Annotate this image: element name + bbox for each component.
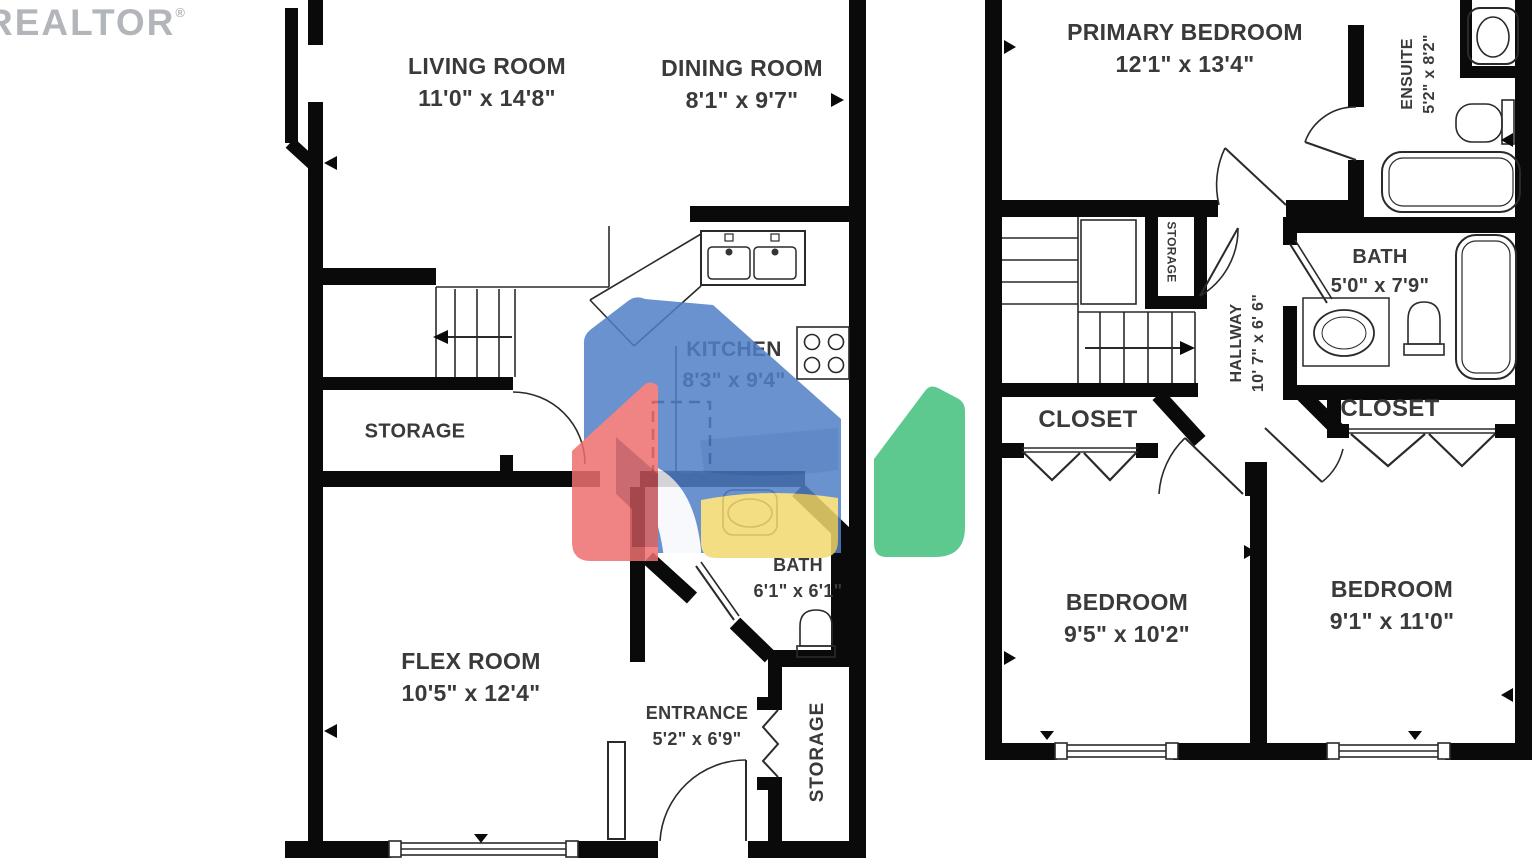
ensuite-toilet-icon bbox=[1456, 100, 1514, 144]
room-name: BATH bbox=[754, 552, 843, 578]
room-name: BATH bbox=[1331, 243, 1430, 272]
room-dims: 12'1" x 13'4" bbox=[1067, 48, 1303, 80]
stove-icon bbox=[797, 327, 849, 379]
room-label-bedroom-right: BEDROOM 9'1" x 11'0" bbox=[1330, 573, 1455, 637]
room-name: KITCHEN bbox=[682, 334, 785, 365]
room-label-closet-left: CLOSET bbox=[1038, 406, 1137, 434]
room-dims: 5'0" x 7'9" bbox=[1331, 272, 1430, 301]
room-label-hallway: HALLWAY 10' 7" x 6' 6" bbox=[1226, 294, 1270, 392]
ensuite-bathtub-icon bbox=[1382, 152, 1520, 212]
room-name: STORAGE bbox=[807, 702, 829, 803]
bath2-sink-icon bbox=[1303, 298, 1389, 366]
room-label-ensuite: ENSUITE 5'2" x 8'2" bbox=[1397, 34, 1441, 113]
room-name: BEDROOM bbox=[1064, 586, 1190, 618]
room-name: STORAGE bbox=[1164, 221, 1179, 282]
floor2-diagonal-walls bbox=[1158, 395, 1340, 441]
room-dims: 10' 7" x 6' 6" bbox=[1248, 294, 1270, 392]
room-label-bedroom-left: BEDROOM 9'5" x 10'2" bbox=[1064, 586, 1190, 650]
room-dims: 10'5" x 12'4" bbox=[401, 677, 540, 709]
ensuite-sink-icon bbox=[1468, 8, 1518, 64]
room-dims: 5'2" x 8'2" bbox=[1419, 34, 1441, 113]
room-name: HALLWAY bbox=[1226, 294, 1248, 392]
dishwasher-dashed-icon bbox=[653, 402, 710, 472]
room-label-bath1: BATH 6'1" x 6'1" bbox=[754, 552, 843, 604]
room-label-storage-mid: STORAGE bbox=[365, 421, 466, 444]
bath1-sink-icon bbox=[723, 490, 777, 535]
room-dims: 11'0" x 14'8" bbox=[408, 82, 566, 114]
room-dims: 6'1" x 6'1" bbox=[754, 578, 843, 604]
room-name: PRIMARY BEDROOM bbox=[1067, 16, 1303, 48]
room-name: DINING ROOM bbox=[661, 52, 823, 84]
room-label-closet-right: CLOSET bbox=[1340, 395, 1439, 423]
room-name: CLOSET bbox=[1038, 406, 1137, 434]
room-label-living-room: LIVING ROOM 11'0" x 14'8" bbox=[408, 50, 566, 114]
room-dims: 8'1" x 9'7" bbox=[661, 84, 823, 116]
room-label-dining-room: DINING ROOM 8'1" x 9'7" bbox=[661, 52, 823, 116]
room-name: CLOSET bbox=[1340, 395, 1439, 423]
room-dims: 9'1" x 11'0" bbox=[1330, 605, 1455, 637]
room-label-primary-bedroom: PRIMARY BEDROOM 12'1" x 13'4" bbox=[1067, 16, 1303, 80]
room-label-flex-room: FLEX ROOM 10'5" x 12'4" bbox=[401, 645, 540, 709]
room-dims: 5'2" x 6'9" bbox=[646, 726, 748, 752]
floorplan-linework bbox=[0, 0, 1536, 864]
room-name: ENTRANCE bbox=[646, 700, 748, 726]
room-label-bath2: BATH 5'0" x 7'9" bbox=[1331, 243, 1430, 301]
room-name: FLEX ROOM bbox=[401, 645, 540, 677]
room-label-kitchen: KITCHEN 8'3" x 9'4" bbox=[682, 334, 785, 396]
room-label-storage-entry: STORAGE bbox=[807, 702, 829, 803]
room-name: BEDROOM bbox=[1330, 573, 1455, 605]
room-name: STORAGE bbox=[365, 421, 466, 444]
bath2-toilet-icon bbox=[1404, 302, 1444, 355]
bath2-bathtub-icon bbox=[1456, 235, 1516, 379]
kitchen-sink-icon bbox=[701, 231, 805, 285]
bath1-toilet-icon bbox=[797, 610, 835, 657]
room-name: ENSUITE bbox=[1397, 34, 1419, 113]
room-label-entrance: ENTRANCE 5'2" x 6'9" bbox=[646, 700, 748, 752]
room-dims: 8'3" x 9'4" bbox=[682, 365, 785, 396]
floor1-thin-lines bbox=[389, 226, 778, 857]
room-label-storage-stair: STORAGE bbox=[1164, 221, 1179, 282]
floorplan-image: REALTOR® bbox=[0, 0, 1536, 864]
room-name: LIVING ROOM bbox=[408, 50, 566, 82]
room-dims: 9'5" x 10'2" bbox=[1064, 618, 1190, 650]
